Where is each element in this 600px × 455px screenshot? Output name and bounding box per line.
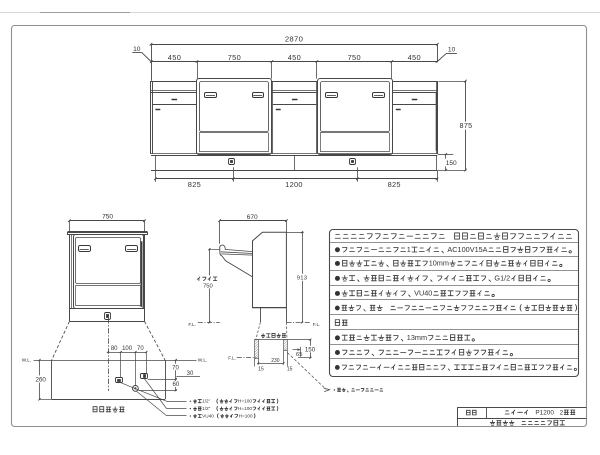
svg-text:60: 60 (173, 382, 180, 388)
svg-text:W.L.: W.L. (22, 358, 32, 364)
svg-text:2: 2 (560, 409, 564, 416)
svg-text:2870: 2870 (285, 35, 303, 44)
svg-text:15: 15 (287, 366, 293, 372)
svg-text:80: 80 (111, 346, 118, 352)
svg-text:10mm: 10mm (429, 258, 449, 267)
svg-text:70: 70 (137, 346, 144, 352)
svg-text:150: 150 (305, 346, 316, 353)
svg-text:VU40: VU40 (414, 288, 432, 297)
svg-text:750: 750 (203, 283, 213, 289)
svg-text:30: 30 (187, 371, 194, 377)
svg-text:F.L.: F.L. (228, 355, 236, 361)
svg-text:70: 70 (172, 365, 179, 371)
svg-text:W.L.: W.L. (198, 358, 208, 364)
svg-text:AC100V15A: AC100V15A (447, 245, 487, 254)
svg-text:450: 450 (408, 53, 421, 62)
svg-text:F.L.: F.L. (188, 322, 196, 328)
svg-text:1/2": 1/2" (202, 399, 211, 404)
svg-text:H=100: H=100 (239, 413, 253, 418)
svg-text:15: 15 (258, 366, 264, 372)
svg-text:750: 750 (348, 53, 361, 62)
svg-text:10: 10 (448, 47, 456, 54)
svg-text:825: 825 (188, 180, 201, 189)
svg-text:450: 450 (168, 53, 181, 62)
svg-text:P1200: P1200 (535, 409, 554, 416)
svg-text:875: 875 (460, 121, 473, 130)
svg-text:1/2": 1/2" (202, 406, 211, 411)
svg-text:VU40: VU40 (202, 413, 214, 418)
svg-text:825: 825 (388, 180, 401, 189)
svg-text:13mm: 13mm (407, 333, 427, 342)
svg-text:1200: 1200 (285, 180, 303, 189)
svg-text:750: 750 (228, 53, 241, 62)
svg-text:F.L.: F.L. (313, 322, 321, 328)
svg-text:913: 913 (297, 276, 308, 282)
svg-text:150: 150 (446, 160, 457, 167)
svg-text:H=100: H=100 (238, 406, 252, 411)
svg-text:100: 100 (122, 346, 133, 352)
svg-text:260: 260 (36, 377, 47, 384)
svg-text:H=100: H=100 (238, 399, 252, 404)
svg-text:230: 230 (271, 358, 280, 364)
svg-text:450: 450 (288, 53, 301, 62)
svg-text:750: 750 (102, 213, 113, 220)
svg-text:G1/2: G1/2 (494, 273, 510, 282)
svg-text:1: 1 (407, 245, 411, 254)
svg-text:65: 65 (296, 352, 302, 358)
